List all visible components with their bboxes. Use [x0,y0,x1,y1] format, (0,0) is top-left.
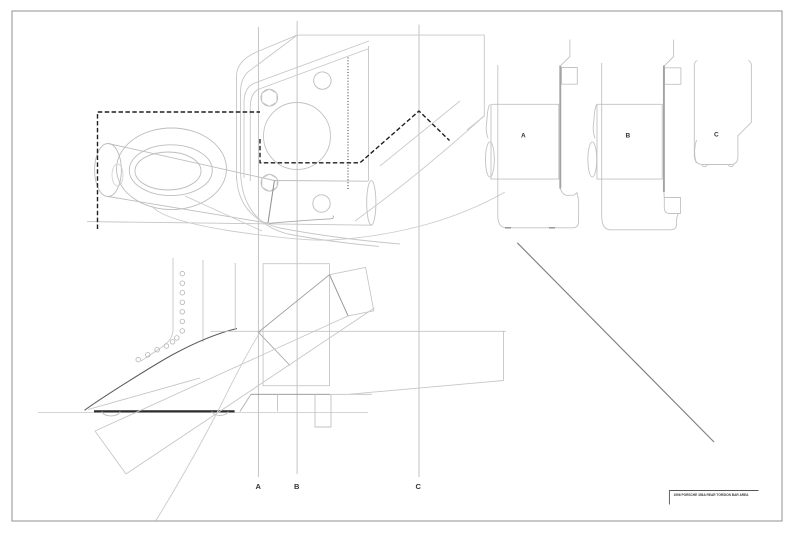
svg-text:A: A [521,133,526,140]
svg-text:B: B [294,482,300,491]
svg-text:C: C [714,132,719,139]
svg-text:A: A [256,482,262,491]
svg-text:1956 PORSCHE 356A REAR TORSION: 1956 PORSCHE 356A REAR TORSION BAR AREA [674,493,750,497]
svg-text:C: C [416,482,422,491]
svg-text:B: B [626,133,631,140]
